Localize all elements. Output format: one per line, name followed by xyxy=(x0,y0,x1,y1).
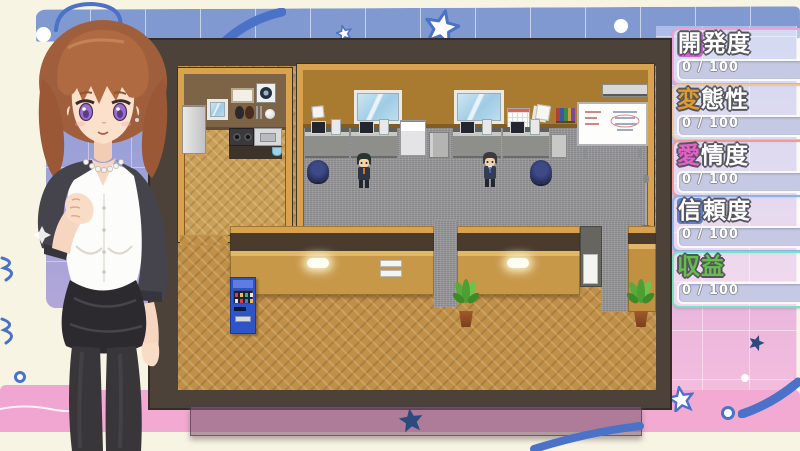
stand-star-icon xyxy=(397,407,425,433)
whiteboard-scribbles-icon xyxy=(579,104,646,144)
blue-bowl-icon xyxy=(272,147,282,156)
stat-card-trust: 信頼度 0 / 100 xyxy=(672,195,800,252)
ventilation-fan xyxy=(256,83,276,103)
stat-card-profit: 収益 0 / 100 xyxy=(672,251,800,308)
walkway-right xyxy=(602,220,628,312)
stat-gauge-hentai-level: 0 / 100 xyxy=(677,115,800,137)
stove xyxy=(229,128,254,146)
vending-window xyxy=(233,290,253,304)
whiteboard xyxy=(577,102,648,146)
stat-gauge-trust: 0 / 100 xyxy=(677,226,800,248)
wall-shelf xyxy=(602,84,648,97)
stat-label-affection: 愛情度 xyxy=(677,142,800,170)
kitchen-corkboard xyxy=(231,88,254,103)
npc-office-worker-2[interactable] xyxy=(480,151,500,189)
plant-pot xyxy=(459,311,473,327)
plant-pot xyxy=(634,311,648,327)
office-window-2 xyxy=(454,90,504,124)
mic-stand xyxy=(639,179,653,233)
stat-label-trust: 信頼度 xyxy=(677,197,800,225)
locker xyxy=(429,132,449,158)
hanging-pan2-icon xyxy=(245,106,254,119)
office-room xyxy=(297,64,654,240)
vending-machine[interactable] xyxy=(230,277,256,334)
office-window-1 xyxy=(354,90,402,124)
potted-plant-2 xyxy=(629,279,652,332)
stat-gauge-development: 0 / 100 xyxy=(677,59,800,81)
stat-card-development: 開発度 0 / 100 xyxy=(672,28,800,85)
wall-paper-note xyxy=(311,105,324,118)
bookshelf-books xyxy=(556,108,575,123)
npc-office-worker-1[interactable] xyxy=(354,152,374,190)
utensils-icon xyxy=(256,106,258,119)
counter-sign-1 xyxy=(380,260,402,267)
stat-card-hentai-level: 変態性 0 / 100 xyxy=(672,84,800,141)
map-stand-shadow xyxy=(190,406,642,436)
side-cabinet xyxy=(551,134,567,158)
kitchen-window xyxy=(207,99,228,120)
game-map-viewport[interactable] xyxy=(148,38,672,410)
secretary-character-illustration xyxy=(8,8,198,451)
counter-light-2 xyxy=(507,258,529,268)
stat-card-affection: 愛情度 0 / 100 xyxy=(672,140,800,197)
reception-counter-left xyxy=(230,226,434,295)
office-chair-1[interactable] xyxy=(307,160,329,182)
stat-gauge-profit: 0 / 100 xyxy=(677,282,800,304)
copier xyxy=(400,120,426,156)
stat-label-hentai-level: 変態性 xyxy=(677,86,800,114)
stat-gauge-affection: 0 / 100 xyxy=(677,171,800,193)
office-desk-4 xyxy=(503,127,549,158)
sink xyxy=(254,128,282,146)
hanging-pan-icon xyxy=(235,106,244,119)
paper-lantern-icon xyxy=(265,109,275,119)
stat-label-development: 開発度 xyxy=(677,30,800,58)
office-chair-2[interactable] xyxy=(530,160,552,184)
office-desk-1 xyxy=(305,127,349,158)
game-screen: 開発度 0 / 100 変態性 0 / 100 愛情度 0 / 100 信頼度 … xyxy=(0,0,800,451)
potted-plant-1 xyxy=(455,279,477,332)
wall-sign-vertical xyxy=(583,254,598,284)
stat-label-profit: 収益 xyxy=(677,253,800,281)
counter-sign-2 xyxy=(380,270,402,277)
counter-light-1 xyxy=(307,258,329,268)
